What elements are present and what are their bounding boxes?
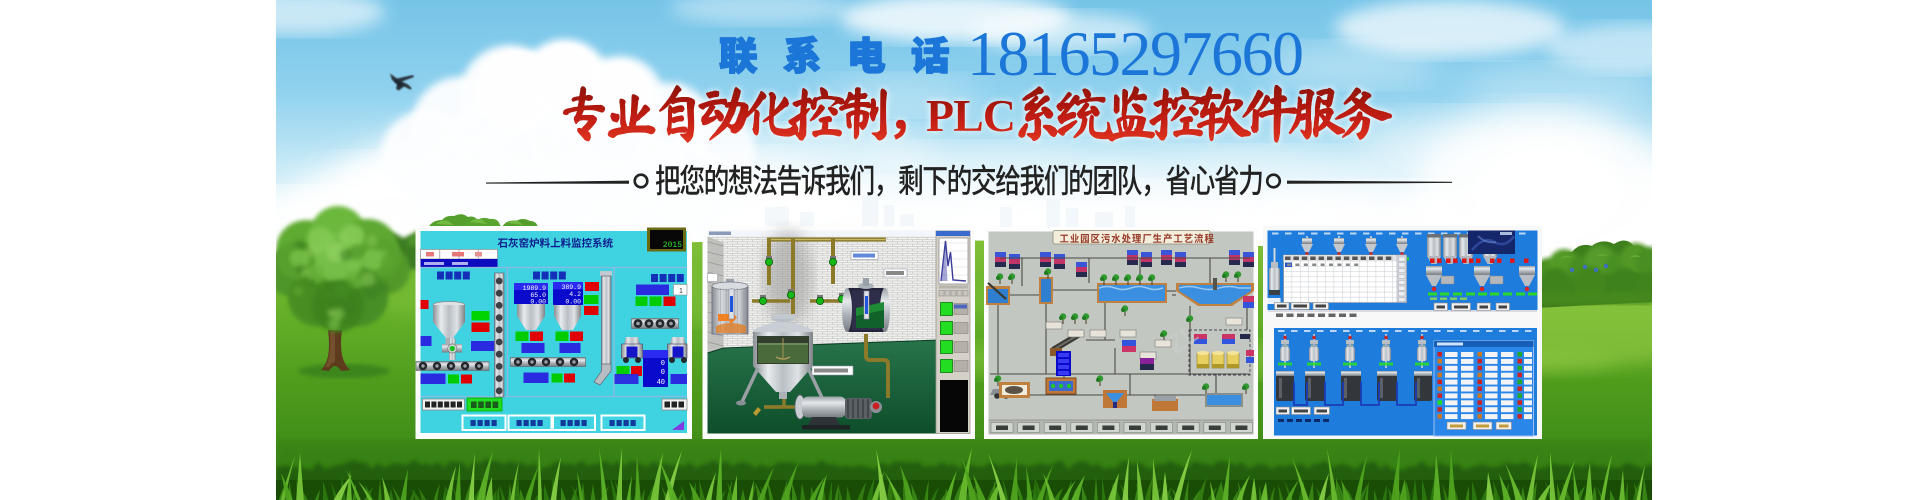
svg-text:0: 0 [661,369,665,377]
svg-text:1: 1 [679,288,683,295]
svg-text:18165297660: 18165297660 [967,18,1303,89]
svg-text:4.2: 4.2 [569,291,581,298]
svg-text:2015: 2015 [663,241,682,250]
svg-text:0: 0 [661,360,665,368]
svg-text:40: 40 [657,379,665,387]
svg-text:0.00: 0.00 [565,299,581,306]
svg-text:1989.9: 1989.9 [523,285,547,292]
svg-text:PLC: PLC [926,90,1015,141]
svg-text:389.9: 389.9 [561,284,581,291]
